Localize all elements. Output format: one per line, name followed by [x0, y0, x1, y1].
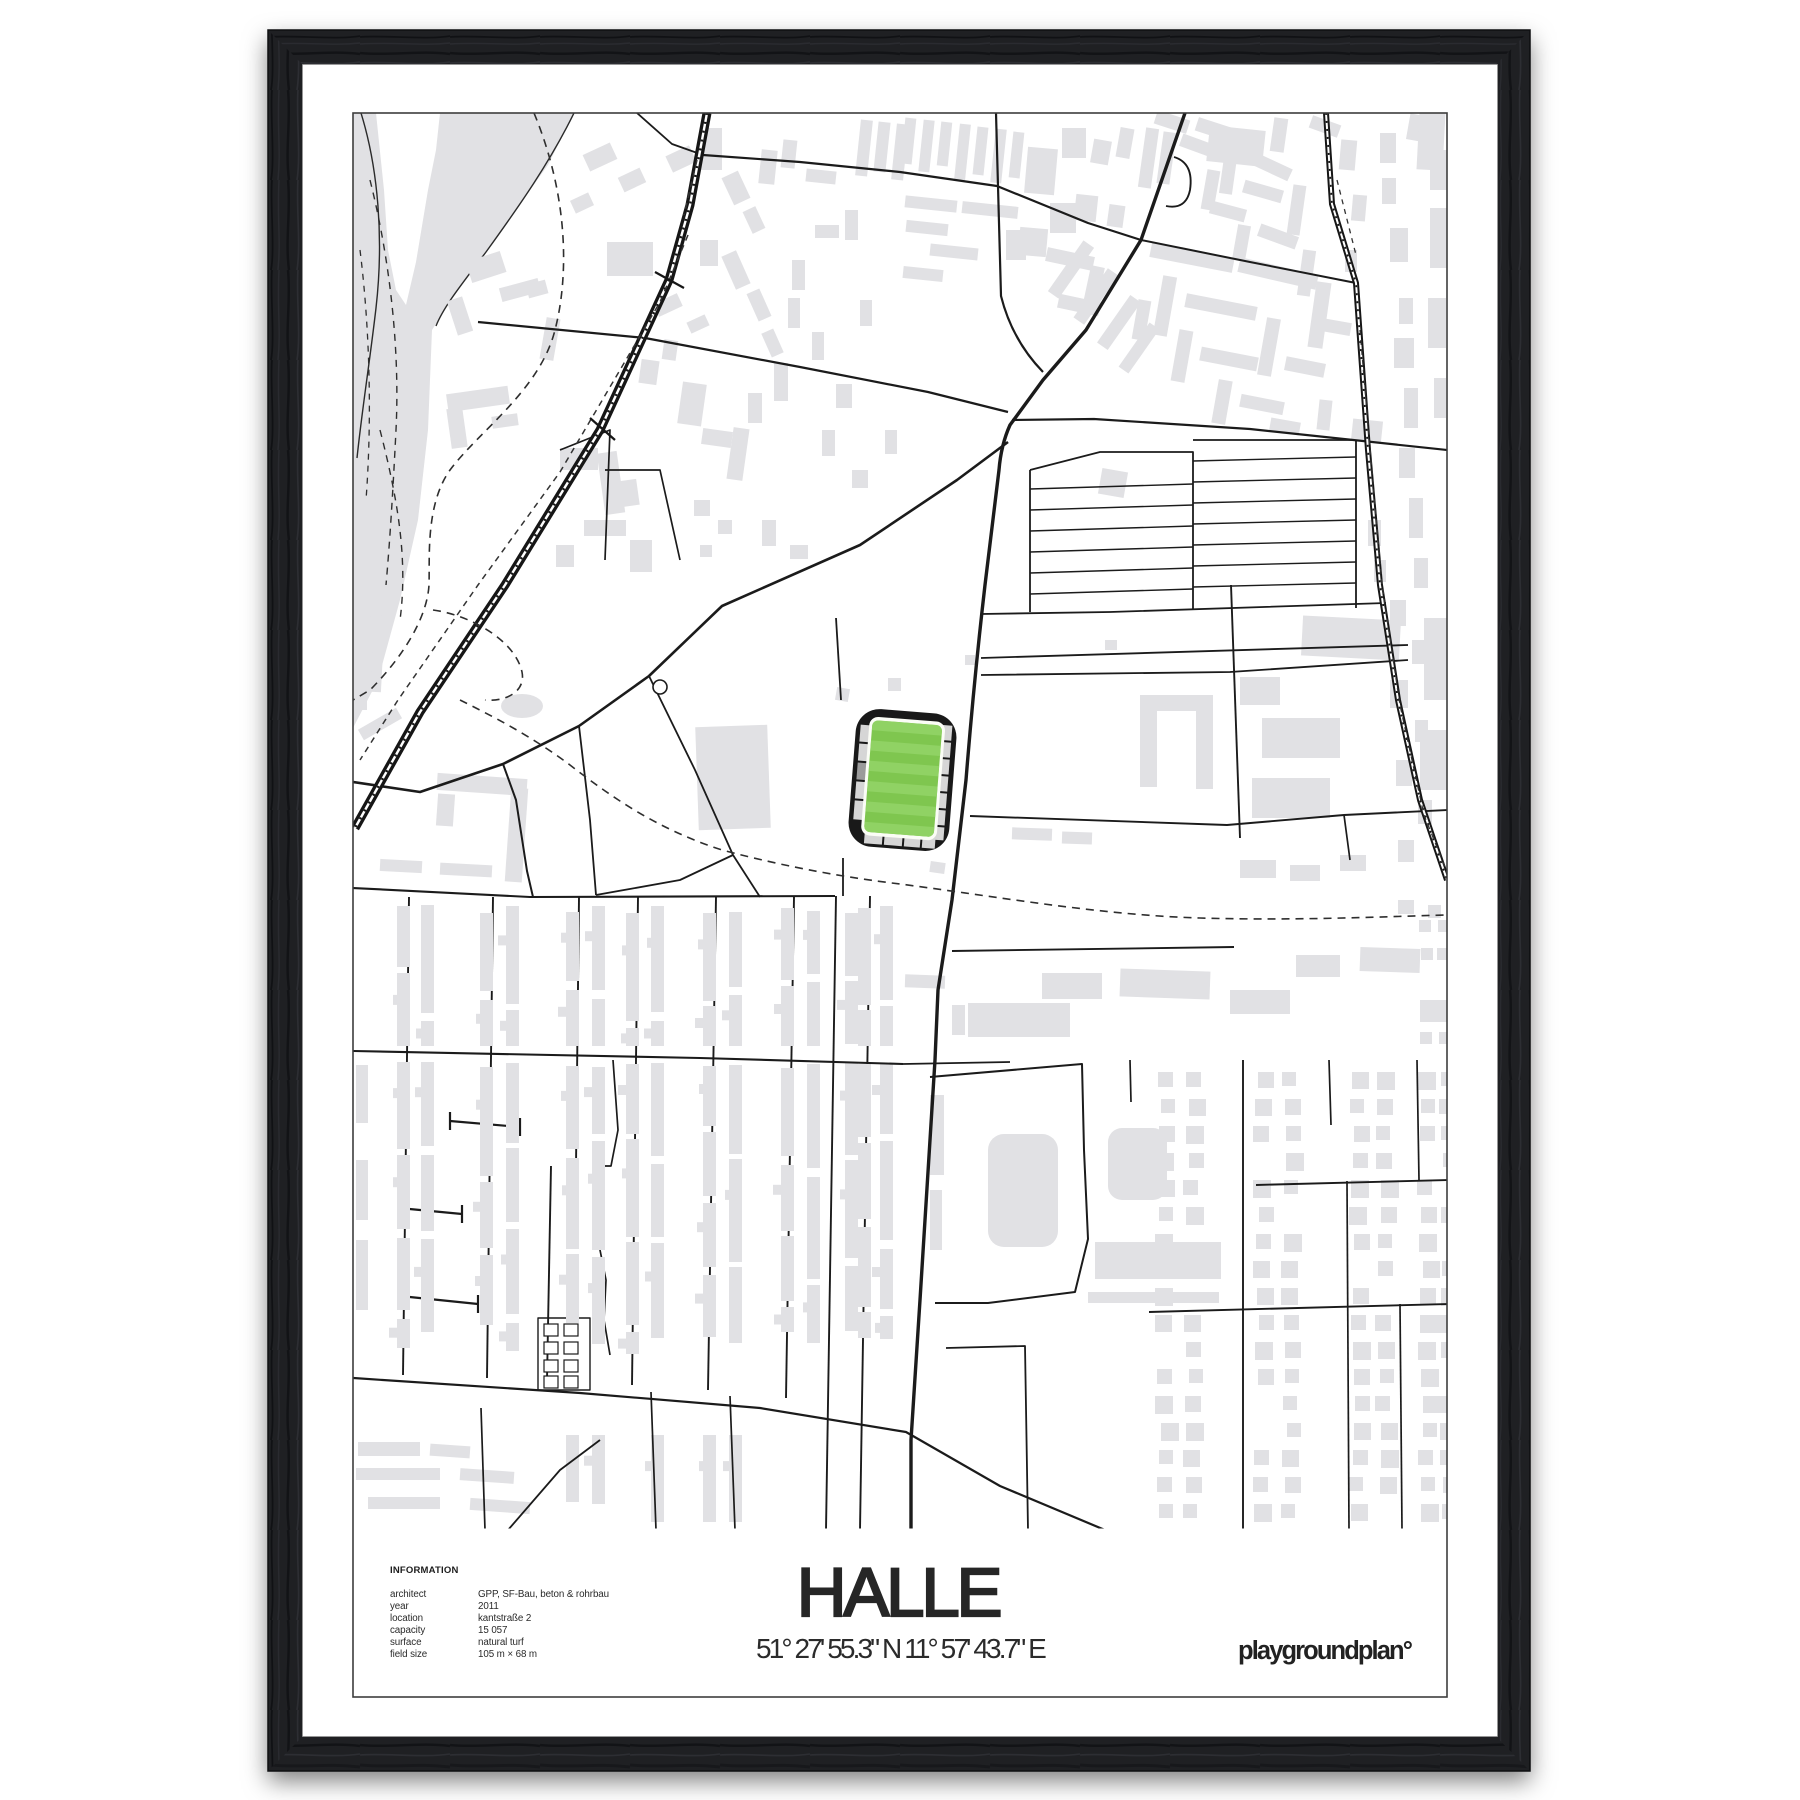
- svg-text:natural turf: natural turf: [478, 1637, 524, 1648]
- svg-text:architect: architect: [390, 1589, 427, 1600]
- svg-text:kantstraße 2: kantstraße 2: [478, 1613, 531, 1624]
- svg-text:GPP, SF-Bau, beton & rohrbau: GPP, SF-Bau, beton & rohrbau: [478, 1589, 609, 1600]
- svg-text:field size: field size: [390, 1649, 428, 1660]
- svg-text:51° 27' 55.3" N 11° 57' 43.7": 51° 27' 55.3" N 11° 57' 43.7" E: [756, 1633, 1046, 1664]
- svg-text:15 057: 15 057: [478, 1625, 507, 1636]
- svg-text:2011: 2011: [478, 1601, 499, 1612]
- svg-text:HALLE: HALLE: [797, 1554, 1001, 1631]
- svg-text:capacity: capacity: [390, 1625, 425, 1636]
- svg-text:year: year: [390, 1601, 409, 1612]
- svg-text:location: location: [390, 1613, 423, 1624]
- svg-text:INFORMATION: INFORMATION: [390, 1565, 459, 1576]
- svg-text:105 m × 68 m: 105 m × 68 m: [478, 1649, 537, 1660]
- svg-text:surface: surface: [390, 1637, 422, 1648]
- svg-text:playgroundplan°: playgroundplan°: [1238, 1637, 1413, 1665]
